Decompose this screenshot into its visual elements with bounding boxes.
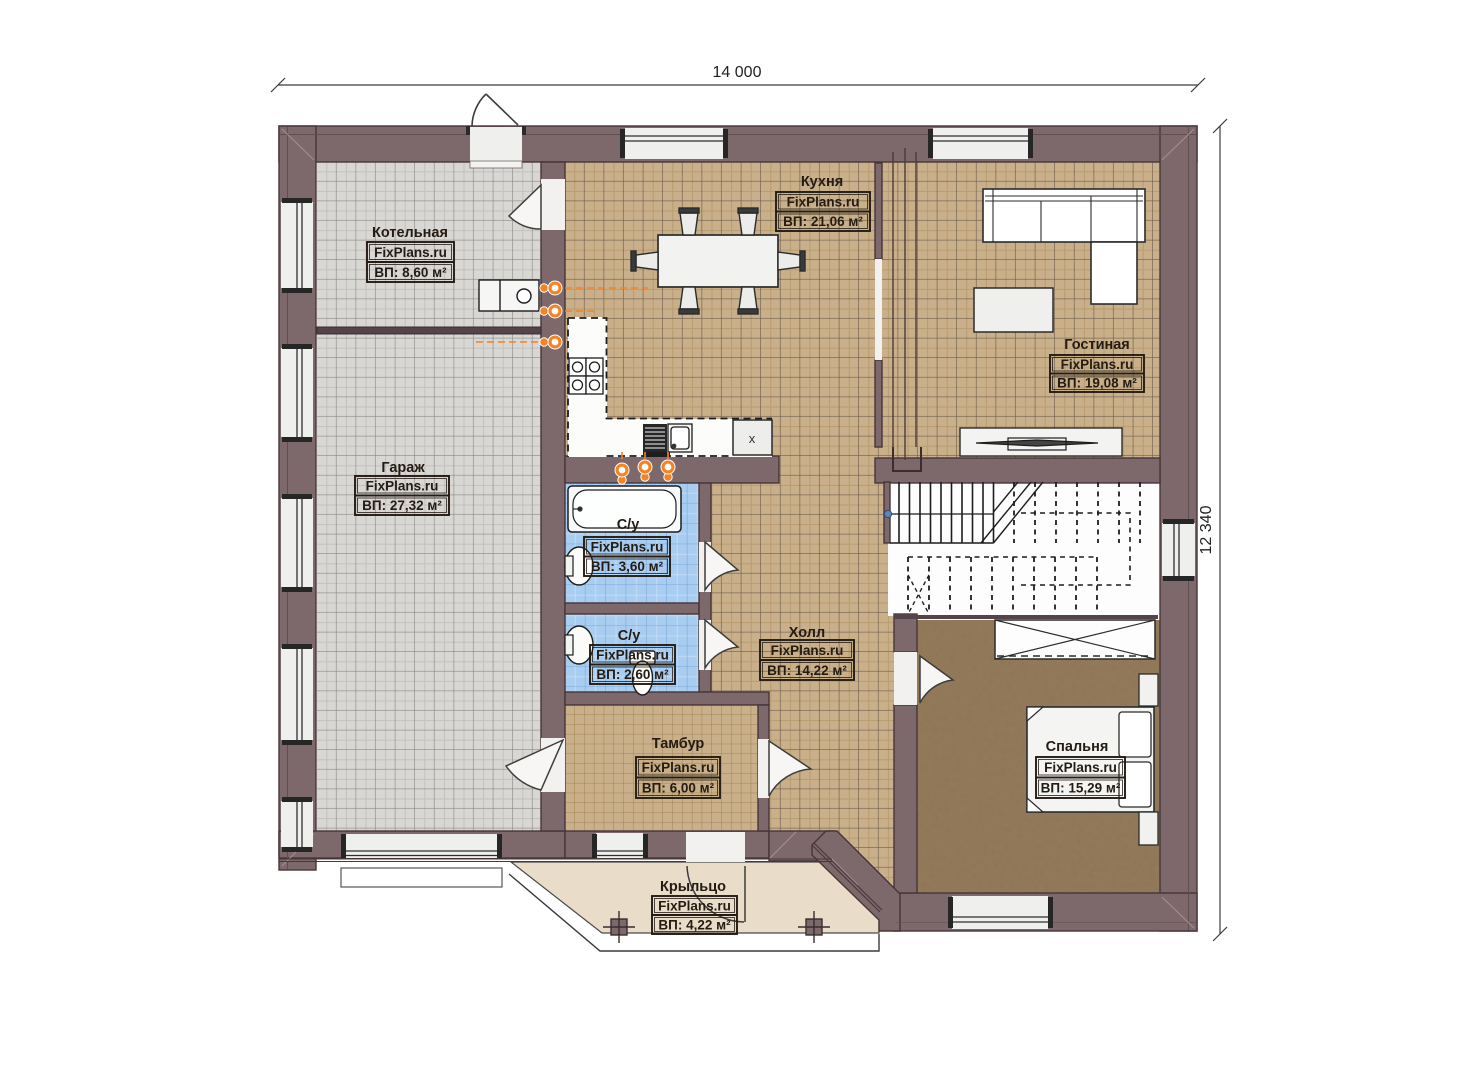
svg-text:ВП: 19,08 м²: ВП: 19,08 м² [1057,376,1137,391]
svg-text:Кухня: Кухня [801,174,843,190]
svg-text:ВП: 8,60 м²: ВП: 8,60 м² [374,265,447,280]
svg-text:Гараж: Гараж [381,460,425,476]
svg-text:FixPlans.ru: FixPlans.ru [771,643,844,658]
svg-text:Гостиная: Гостиная [1064,337,1130,353]
svg-text:FixPlans.ru: FixPlans.ru [366,479,439,494]
svg-text:x: x [749,431,756,446]
svg-text:Холл: Холл [789,625,825,641]
svg-text:FixPlans.ru: FixPlans.ru [787,195,860,210]
svg-text:ВП: 27,32 м²: ВП: 27,32 м² [362,498,442,513]
svg-text:12 340: 12 340 [1198,505,1215,554]
svg-text:FixPlans.ru: FixPlans.ru [596,648,669,663]
svg-text:Спальня: Спальня [1046,739,1109,755]
svg-text:FixPlans.ru: FixPlans.ru [591,540,664,555]
svg-text:ВП: 4,22 м²: ВП: 4,22 м² [658,917,731,932]
svg-text:ВП: 21,06 м²: ВП: 21,06 м² [783,214,863,229]
svg-text:С/у: С/у [618,628,641,644]
svg-text:ВП: 6,00 м²: ВП: 6,00 м² [642,781,715,796]
svg-text:FixPlans.ru: FixPlans.ru [658,898,731,913]
svg-text:Крыльцо: Крыльцо [660,879,726,895]
svg-text:ВП: 14,22 м²: ВП: 14,22 м² [767,663,847,678]
svg-text:Котельная: Котельная [372,225,448,241]
svg-text:ВП: 3,60 м²: ВП: 3,60 м² [591,559,664,574]
svg-text:FixPlans.ru: FixPlans.ru [374,245,447,260]
svg-text:ВП: 15,29 м²: ВП: 15,29 м² [1041,781,1121,796]
svg-text:14 000: 14 000 [713,64,762,81]
svg-text:FixPlans.ru: FixPlans.ru [1061,357,1134,372]
svg-text:ВП: 2,60 м²: ВП: 2,60 м² [596,667,669,682]
svg-text:FixPlans.ru: FixPlans.ru [642,760,715,775]
svg-text:FixPlans.ru: FixPlans.ru [1044,760,1117,775]
svg-text:С/у: С/у [617,517,640,533]
svg-text:Тамбур: Тамбур [652,736,705,752]
